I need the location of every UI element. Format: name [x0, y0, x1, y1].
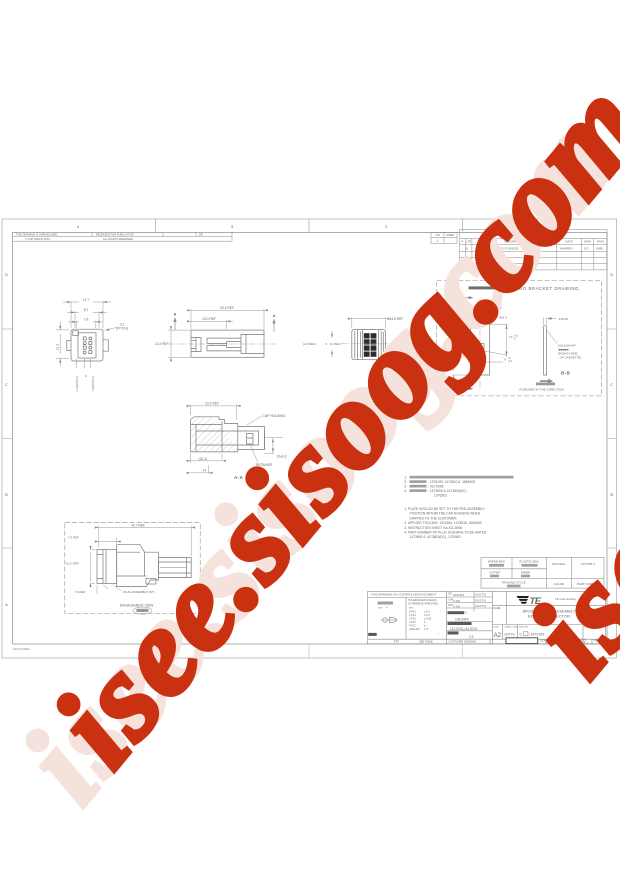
svg-text:3 PLC: 3 PLC — [409, 620, 416, 624]
svg-text:-0.3: -0.3 — [508, 361, 513, 363]
svg-text:SWB: SWB — [596, 246, 603, 250]
svg-text:SHIPPED TO THE CUSTOMER: SHIPPED TO THE CUSTOMER — [410, 516, 458, 520]
svg-text:C: C — [610, 382, 613, 387]
svg-text:+0: +0 — [508, 358, 511, 360]
svg-text:(20.1): (20.1) — [199, 457, 208, 461]
svg-text:1.: 1. — [404, 476, 407, 480]
svg-text:3: 3 — [231, 224, 234, 229]
svg-text:DR: DR — [448, 592, 452, 596]
svg-text:A: A — [273, 313, 276, 318]
svg-text:(2.6 REF): (2.6 REF) — [303, 342, 316, 346]
svg-text:2: 2 — [385, 224, 388, 229]
svg-text:A: A — [174, 312, 177, 317]
svg-text:4 PLC: 4 PLC — [409, 623, 416, 627]
svg-text:4: 4 — [386, 606, 388, 610]
svg-text:POSITION WITHIN THE CAP HOUSIN: POSITION WITHIN THE CAP HOUSING WHEN — [410, 512, 481, 516]
svg-text:PAPER BOX: PAPER BOX — [488, 560, 505, 564]
svg-text:± 0.3: ± 0.3 — [424, 613, 430, 617]
svg-text:D: D — [5, 272, 8, 277]
svg-text:19OCT01: 19OCT01 — [475, 598, 487, 602]
svg-text:OKETANI: OKETANI — [453, 593, 464, 597]
svg-text:14.3 REF: 14.3 REF — [155, 342, 169, 346]
svg-text:OTHERWISE SPECIFIED:: OTHERWISE SPECIFIED: — [408, 601, 439, 605]
svg-text:1. PLATE SHOULD BE SET TO THE: 1. PLATE SHOULD BE SET TO THE PRE-ASSEMB… — [404, 507, 485, 511]
svg-text:CUSTOMER DRAWING: CUSTOMER DRAWING — [449, 640, 477, 644]
svg-text:PLASTIC BAG: PLASTIC BAG — [519, 560, 539, 564]
svg-text:7.5 REF: 7.5 REF — [68, 536, 79, 540]
svg-text:114-5216,114-5291: 114-5216,114-5291 — [450, 627, 478, 631]
svg-text:: 1473800 & 1473803(DC): : 1473800 & 1473803(DC) — [428, 489, 467, 493]
svg-text:-°: -° — [437, 632, 439, 636]
svg-text:+0.2: +0.2 — [514, 336, 519, 338]
svg-text:8: 8 — [84, 375, 88, 377]
svg-text:K.SAI: K.SAI — [454, 604, 461, 608]
svg-text:APVD: APVD — [597, 240, 605, 244]
svg-text:19OCT01: 19OCT01 — [475, 593, 487, 597]
svg-text:7.8: 7.8 — [84, 318, 89, 322]
svg-text:11.3: 11.3 — [56, 344, 60, 350]
svg-text:-0: -0 — [514, 338, 517, 340]
svg-text:12.7: 12.7 — [83, 298, 90, 302]
svg-text:1376562: 1376562 — [434, 494, 447, 498]
svg-text:SIZE: SIZE — [494, 627, 499, 629]
svg-text:OF CASSETTE): OF CASSETTE) — [560, 356, 582, 360]
svg-text:1471-9 (3/11): 1471-9 (3/11) — [13, 647, 30, 651]
svg-text:1473800 & 1473803(DC), 1376562: 1473800 & 1473803(DC), 1376562 — [410, 535, 461, 539]
svg-text:THIS DRAWING IS A CONTROLLED D: THIS DRAWING IS A CONTROLLED DOCUMENT. — [371, 593, 437, 597]
svg-text:OUTER: OUTER — [489, 571, 500, 575]
svg-text:23.2 REF: 23.2 REF — [205, 402, 219, 406]
svg-text:6: 6 — [505, 358, 507, 362]
svg-text:B: B — [610, 492, 613, 497]
svg-text:± 3°: ± 3° — [424, 627, 429, 631]
svg-text:15.0 REF: 15.0 REF — [202, 317, 216, 321]
svg-text:PRT: PRT — [394, 640, 400, 644]
svg-text:2.6: 2.6 — [469, 635, 474, 639]
svg-text:0 PLC: 0 PLC — [409, 609, 416, 613]
svg-text:WEIGHT: WEIGHT — [448, 632, 458, 635]
svg-text:1.3(PITCH): 1.3(PITCH) — [75, 376, 79, 391]
svg-text:: 1376199, 1473810-6, 1565408: : 1376199, 1473810-6, 1565408 — [428, 480, 475, 484]
svg-text:K.SAI: K.SAI — [454, 599, 461, 603]
svg-text:A2: A2 — [494, 632, 502, 639]
svg-text:PUNCHED IN THE DIRECTION: PUNCHED IN THE DIRECTION — [520, 388, 564, 392]
svg-text:10.2 REF: 10.2 REF — [66, 562, 79, 566]
svg-text:PACKING STYLE: PACKING STYLE — [502, 581, 526, 585]
svg-text:1 PLC: 1 PLC — [409, 613, 416, 617]
svg-text:APPLICATION SPEC: APPLICATION SPEC — [448, 623, 471, 626]
svg-text:± 0.25: ± 0.25 — [424, 616, 432, 620]
svg-text:4. PART NUMBER OF PLUG HOUSING: 4. PART NUMBER OF PLUG HOUSING TO BE MAT… — [404, 531, 487, 535]
svg-text:A: A — [5, 602, 8, 607]
svg-text:PRODUCT SPEC: PRODUCT SPEC — [448, 612, 467, 615]
svg-text:7.8(PITCH): 7.8(PITCH) — [91, 376, 95, 391]
svg-text:D: D — [610, 272, 613, 277]
svg-text:± 0.4: ± 0.4 — [424, 609, 430, 613]
svg-text:THIS DRAWING IS UNPUBLISHED.: THIS DRAWING IS UNPUBLISHED. — [16, 233, 58, 237]
svg-text:4: 4 — [77, 224, 80, 229]
svg-text:3. INSTRUCTION SHEET No.411-50: 3. INSTRUCTION SHEET No.411-5096 — [404, 526, 462, 530]
svg-text:30.2 REF: 30.2 REF — [220, 306, 234, 310]
svg-text:19OCT01: 19OCT01 — [475, 604, 487, 608]
svg-text:SEE TABLE: SEE TABLE — [419, 640, 433, 644]
svg-text:7.9 REF: 7.9 REF — [75, 590, 86, 594]
svg-text:mm: mm — [378, 607, 382, 610]
svg-text:INNER: INNER — [521, 571, 531, 575]
svg-text:ANGLES: ANGLES — [409, 627, 420, 631]
svg-text:mm: mm — [409, 607, 413, 610]
svg-text:3.: 3. — [404, 485, 407, 489]
svg-text:00779: 00779 — [505, 633, 515, 637]
svg-text:CAGE CODE: CAGE CODE — [505, 626, 519, 629]
svg-text:2. APPLIED TOOLING: 1376184, 1: 2. APPLIED TOOLING: 1376184, 1473818, 15… — [404, 521, 481, 525]
svg-text:4.: 4. — [404, 489, 407, 493]
svg-text:1±0.05: 1±0.05 — [559, 317, 569, 321]
svg-text:8.7: 8.7 — [84, 308, 89, 312]
svg-text:B: B — [5, 492, 8, 497]
svg-text:RELEASED FOR PUBLICATION: RELEASED FOR PUBLICATION — [96, 233, 134, 237]
svg-text:: 411-5096: : 411-5096 — [428, 485, 444, 489]
svg-text:© COPYRIGHT 20XX: © COPYRIGHT 20XX — [25, 237, 50, 241]
svg-text:(PITCH): (PITCH) — [116, 326, 128, 330]
svg-text:2 PLC: 2 PLC — [409, 616, 416, 620]
svg-text:108-5469: 108-5469 — [455, 617, 469, 621]
svg-text:C: C — [5, 382, 8, 387]
svg-text:ALL RIGHTS RESERVED.: ALL RIGHTS RESERVED. — [103, 237, 134, 241]
svg-text:NAME: NAME — [494, 607, 501, 610]
svg-text:B-B: B-B — [561, 371, 570, 376]
svg-text:C: C — [520, 633, 523, 637]
svg-text:DR: DR — [199, 233, 203, 237]
svg-text:2.: 2. — [404, 480, 407, 484]
svg-text:14: 14 — [203, 468, 207, 472]
svg-text:42.7 REF: 42.7 REF — [131, 524, 145, 528]
